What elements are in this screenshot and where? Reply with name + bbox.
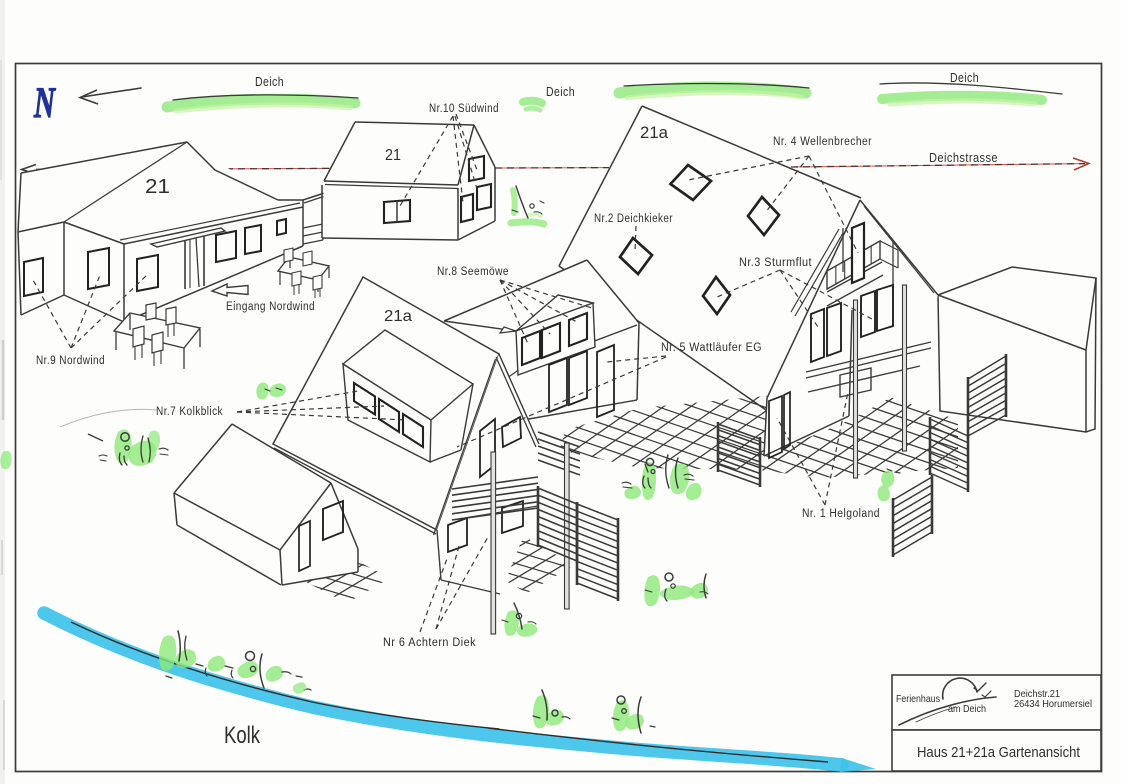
svg-text:Nr. 5 Wattläufer EG: Nr. 5 Wattläufer EG — [661, 342, 762, 354]
svg-text:Deich: Deich — [255, 75, 284, 89]
svg-text:21: 21 — [385, 147, 401, 164]
svg-text:Nr.9 Nordwind: Nr.9 Nordwind — [36, 355, 105, 367]
svg-text:21a: 21a — [640, 123, 669, 142]
svg-text:21: 21 — [145, 176, 170, 198]
svg-text:Deichstrasse: Deichstrasse — [929, 151, 998, 165]
svg-text:Nr.10 Südwind: Nr.10 Südwind — [429, 103, 499, 115]
svg-text:26434 Horumersiel: 26434 Horumersiel — [1014, 698, 1092, 710]
svg-text:Nr. 4 Wellenbrecher: Nr. 4 Wellenbrecher — [773, 136, 872, 148]
svg-text:Nr.2 Deichkieker: Nr.2 Deichkieker — [594, 213, 673, 225]
svg-text:N: N — [33, 80, 56, 127]
svg-text:Eingang Nordwind: Eingang Nordwind — [226, 301, 315, 313]
svg-text:Deich: Deich — [546, 85, 575, 99]
svg-text:Nr.8 Seemöwe: Nr.8 Seemöwe — [437, 266, 509, 278]
svg-text:Nr.3 Sturmflut: Nr.3 Sturmflut — [739, 257, 812, 269]
svg-text:Ferienhaus: Ferienhaus — [896, 693, 940, 705]
svg-text:21a: 21a — [384, 308, 412, 325]
svg-text:Haus 21+21a Gartenansicht: Haus 21+21a Gartenansicht — [917, 744, 1081, 761]
svg-text:Nr 6 Achtern Diek: Nr 6 Achtern Diek — [383, 637, 476, 649]
svg-text:Nr.7 Kolkblick: Nr.7 Kolkblick — [156, 406, 223, 418]
svg-text:Kolk: Kolk — [224, 722, 261, 749]
svg-text:Deich: Deich — [950, 71, 979, 85]
svg-text:Nr. 1 Helgoland: Nr. 1 Helgoland — [802, 508, 880, 520]
